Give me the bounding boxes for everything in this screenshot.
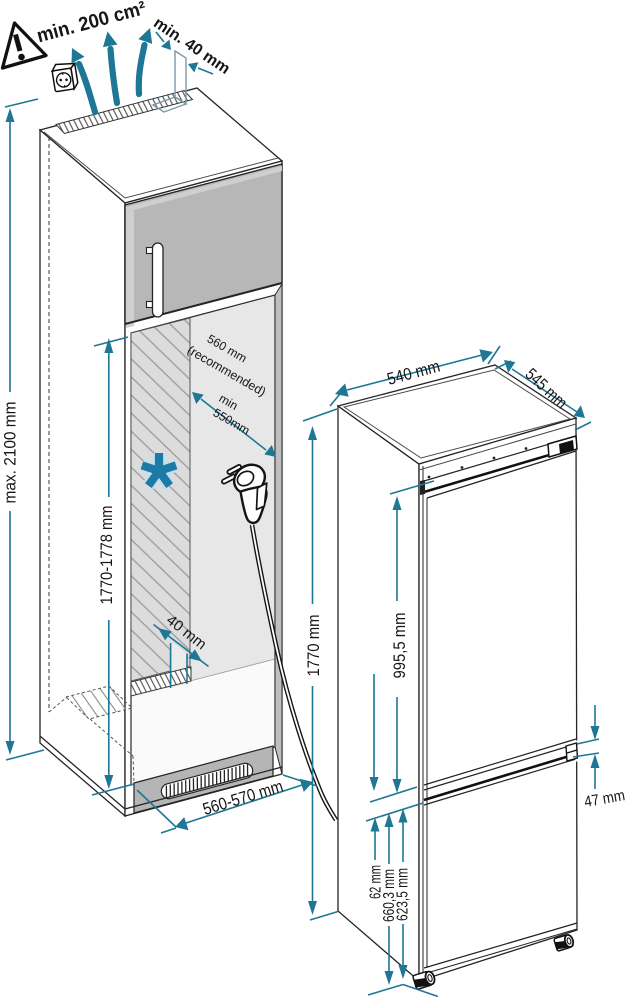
- svg-text:623,5 mm: 623,5 mm: [395, 868, 412, 921]
- svg-text:min. 200 cm²: min. 200 cm²: [35, 0, 149, 47]
- svg-text:1770 mm: 1770 mm: [304, 615, 323, 677]
- svg-text:max. 2100 mm: max. 2100 mm: [1, 402, 20, 504]
- svg-text:47 mm: 47 mm: [583, 787, 626, 811]
- svg-text:1770-1778 mm: 1770-1778 mm: [97, 506, 116, 605]
- svg-text:995,5 mm: 995,5 mm: [390, 613, 409, 679]
